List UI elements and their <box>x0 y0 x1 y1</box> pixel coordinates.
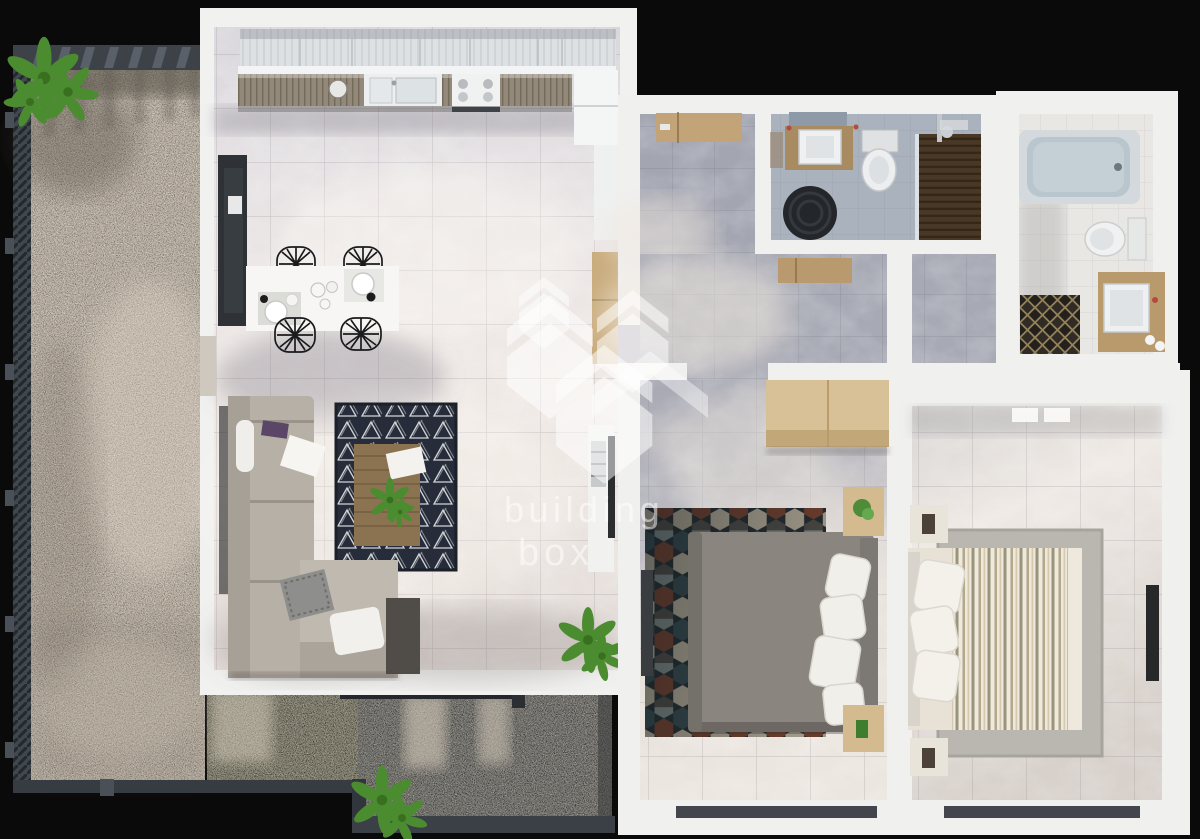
svg-text:building: building <box>504 489 664 530</box>
svg-text:box: box <box>518 532 594 574</box>
